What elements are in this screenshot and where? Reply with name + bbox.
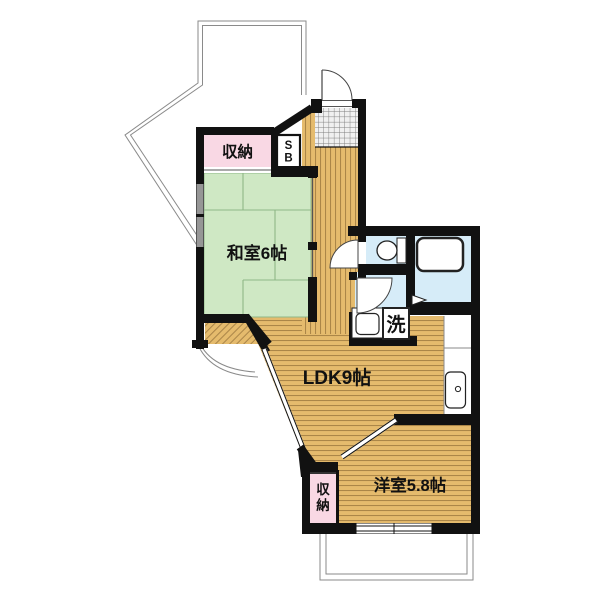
- shoebox-label-s: S: [285, 140, 293, 152]
- toilet-doorway: [358, 242, 366, 266]
- kitchen-counter: [444, 316, 471, 416]
- west-window-1: [197, 184, 204, 214]
- laundry-label: 洗: [386, 313, 405, 336]
- closet-bottom-label-1: 収: [316, 482, 330, 497]
- washing-machine-icon: [356, 314, 379, 335]
- washitsu-label: 和室6帖: [227, 243, 287, 263]
- yoshitsu-label: 洋室5.8帖: [374, 475, 447, 495]
- shoebox-label-b: B: [284, 153, 292, 165]
- faucet-icon: [455, 386, 460, 391]
- west-window-2: [197, 217, 204, 247]
- east-outer-wall: [471, 226, 480, 534]
- ldk-label: LDK9帖: [303, 366, 372, 389]
- closet-top-label: 収納: [222, 142, 253, 161]
- toilet-tank-icon: [397, 238, 406, 263]
- floor-plan-canvas: 収納 S B 和室6帖 LDK9帖 洗 洋室5.8帖 収 納: [0, 0, 600, 600]
- bathtub-icon: [417, 238, 463, 271]
- toilet-icon: [377, 241, 397, 260]
- closet-bottom-label-2: 納: [316, 497, 330, 513]
- room-washitsu: [192, 108, 318, 349]
- floor-plan-page: 収納 S B 和室6帖 LDK9帖 洗 洋室5.8帖 収 納: [0, 0, 600, 600]
